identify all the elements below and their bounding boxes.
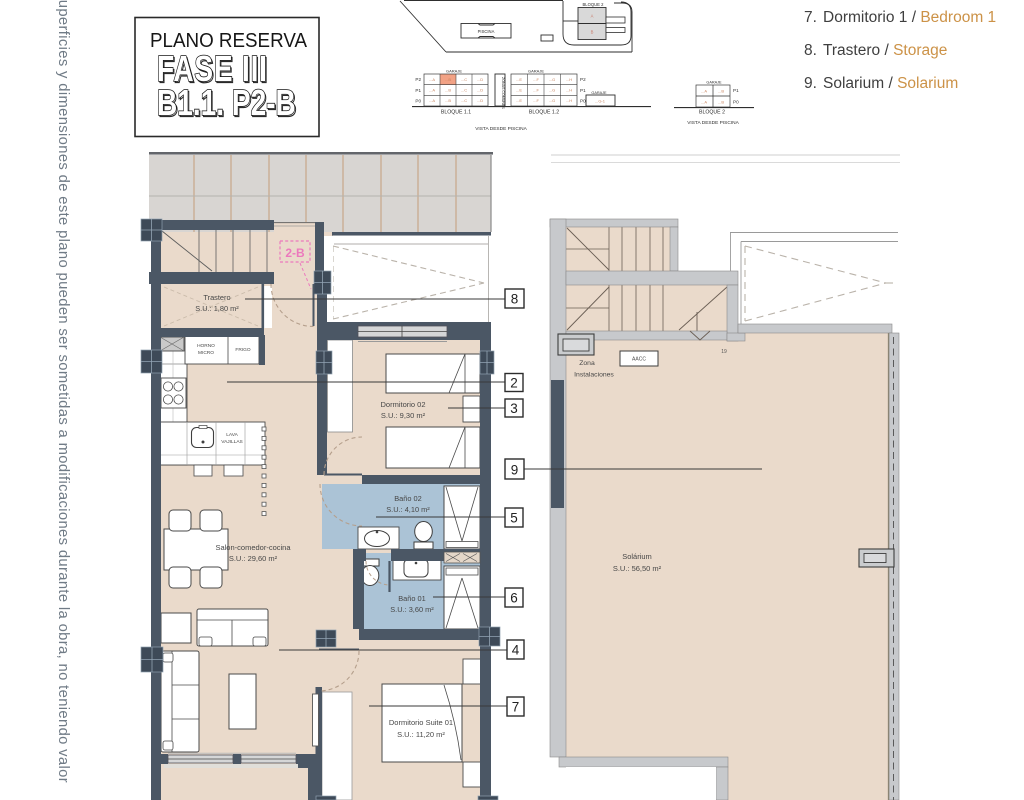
svg-text:P1: P1 [580,88,586,93]
svg-text:B1.1. P2-B: B1.1. P2-B [157,83,296,123]
svg-text:P1: P1 [415,88,421,93]
svg-text:ZONAS COMUNES: ZONAS COMUNES [501,77,505,109]
svg-text:GARAJE: GARAJE [706,81,722,85]
svg-text:...A: ...A [429,88,435,93]
svg-text:Trastero: Trastero [203,293,230,302]
svg-text:VAJILLAS: VAJILLAS [221,439,243,445]
svg-text:BLOQUE 2: BLOQUE 2 [699,110,725,116]
svg-text:Dormitorio 02: Dormitorio 02 [380,400,425,409]
svg-text:...B: ...B [718,89,724,94]
svg-text:B: B [591,30,594,35]
svg-text:...H: ...H [566,98,572,103]
svg-text:P0: P0 [580,99,586,104]
svg-text:...A: ...A [701,89,707,94]
svg-text:Salon-comedor-cocina: Salon-comedor-cocina [215,543,291,552]
svg-text:...B: ...B [718,100,724,105]
svg-text:VISTA DESDE PISCINA: VISTA DESDE PISCINA [475,126,527,132]
svg-text:...G: ...G [549,98,555,103]
svg-text:S.U.: 9,30 m²: S.U.: 9,30 m² [381,411,426,420]
svg-text:AACC: AACC [632,357,646,363]
svg-text:LAVA: LAVA [226,432,238,438]
svg-text:superficies y dimensiones de e: superficies y dimensiones de este plano … [55,0,71,783]
svg-text:...B: ...B [445,77,451,82]
svg-text:8.: 8. [804,42,817,59]
svg-text:...H: ...H [566,77,572,82]
svg-text:S.U.: 4,10 m²: S.U.: 4,10 m² [386,505,430,514]
svg-text:8: 8 [511,292,519,307]
svg-text:...C: ...C [461,77,467,82]
svg-text:S.U.: 3,60 m²: S.U.: 3,60 m² [390,605,434,614]
svg-text:Solárium: Solárium [622,552,652,561]
svg-text:4: 4 [512,643,520,658]
svg-text:Dormitorio 1 / Bedroom 1: Dormitorio 1 / Bedroom 1 [823,9,996,26]
svg-text:19: 19 [721,349,727,355]
svg-text:...C: ...C [461,88,467,93]
svg-text:7: 7 [512,700,520,715]
svg-text:7.: 7. [804,9,817,26]
svg-text:...B: ...B [445,88,451,93]
svg-text:HORNO: HORNO [197,343,215,349]
svg-text:A: A [591,14,594,19]
svg-text:...E: ...E [516,98,522,103]
svg-text:BLOQUE 2: BLOQUE 2 [583,2,605,7]
svg-text:...C: ...C [461,98,467,103]
svg-text:...F: ...F [533,98,539,103]
svg-text:...A: ...A [429,77,435,82]
svg-text:VISTA DESDE PISCINA: VISTA DESDE PISCINA [687,120,739,126]
svg-text:...A: ...A [429,98,435,103]
svg-text:Trastero / Storage: Trastero / Storage [823,42,947,59]
svg-text:3: 3 [510,401,518,416]
svg-text:S.U.: 29,60 m²: S.U.: 29,60 m² [229,554,278,563]
svg-text:9: 9 [511,463,519,478]
svg-text:...D: ...D [477,77,483,82]
svg-text:S.U.: 11,20 m²: S.U.: 11,20 m² [397,730,445,739]
svg-text:...B: ...B [445,98,451,103]
svg-text:...D: ...D [477,88,483,93]
svg-text:P1: P1 [733,88,739,93]
svg-text:BLOQUE 1.1: BLOQUE 1.1 [441,110,471,116]
svg-text:P0: P0 [415,99,421,104]
svg-text:GARAJE: GARAJE [591,91,607,95]
svg-text:...E: ...E [516,88,522,93]
svg-text:2-B: 2-B [285,246,305,260]
svg-text:...H: ...H [566,88,572,93]
svg-text:GARAJE: GARAJE [528,69,544,74]
svg-text:...D: ...D [477,98,483,103]
svg-text:2: 2 [510,376,518,391]
svg-text:PISCINA: PISCINA [478,29,495,34]
svg-text:...G: ...G [549,77,555,82]
svg-text:S.U.: 1,80 m²: S.U.: 1,80 m² [195,304,239,313]
svg-text:Solarium / Solarium: Solarium / Solarium [823,75,958,92]
svg-text:GARAJE: GARAJE [446,69,462,74]
svg-text:...F: ...F [533,77,539,82]
svg-text:P2: P2 [580,77,586,82]
svg-text:S.U.: 56,50 m²: S.U.: 56,50 m² [613,564,662,573]
svg-text:Baño 01: Baño 01 [398,594,426,603]
svg-text:FRIGO: FRIGO [235,347,250,353]
svg-text:Instalaciones: Instalaciones [574,372,614,379]
svg-text:Baño 02: Baño 02 [394,494,422,503]
svg-text:P0: P0 [733,100,739,105]
svg-text:...G-1: ...G-1 [595,99,606,104]
svg-text:6: 6 [510,591,518,606]
svg-text:Zona: Zona [579,360,595,367]
svg-text:5: 5 [510,511,518,526]
svg-text:P2: P2 [415,77,421,82]
svg-text:...A: ...A [701,100,707,105]
svg-text:9.: 9. [804,75,817,92]
svg-text:...E: ...E [516,77,522,82]
svg-text:Dormitorio Suite 01: Dormitorio Suite 01 [389,718,453,727]
svg-text:BLOQUE 1.2: BLOQUE 1.2 [529,110,559,116]
svg-text:...F: ...F [533,88,539,93]
svg-text:...G: ...G [549,88,555,93]
svg-text:MICRO: MICRO [198,350,214,356]
